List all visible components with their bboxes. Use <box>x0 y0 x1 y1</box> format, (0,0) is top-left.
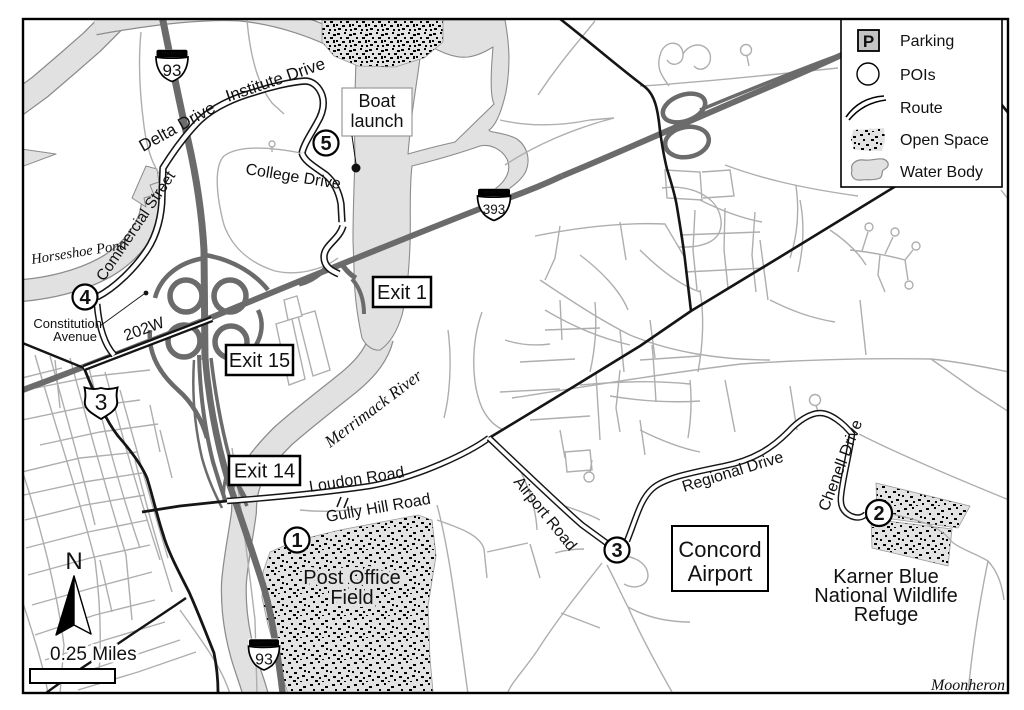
svg-text:Concord: Concord <box>678 537 761 562</box>
svg-text:93: 93 <box>255 652 273 669</box>
svg-text:Exit 15: Exit 15 <box>229 350 290 372</box>
svg-text:Parking: Parking <box>900 33 954 50</box>
svg-text:0.25 Miles: 0.25 Miles <box>50 644 137 665</box>
svg-text:2: 2 <box>873 503 884 525</box>
svg-text:launch: launch <box>350 111 403 131</box>
svg-text:Boat: Boat <box>358 91 395 111</box>
svg-text:Moonheron: Moonheron <box>930 677 1005 694</box>
svg-text:3: 3 <box>611 540 622 562</box>
svg-text:Exit 1: Exit 1 <box>377 282 427 304</box>
svg-text:Water Body: Water Body <box>900 164 983 181</box>
svg-text:Avenue: Avenue <box>53 329 97 344</box>
svg-text:POIs: POIs <box>900 67 936 84</box>
svg-text:Post Office: Post Office <box>303 567 400 589</box>
svg-text:P: P <box>863 32 874 51</box>
svg-text:1: 1 <box>291 530 302 552</box>
svg-text:Route: Route <box>900 100 943 117</box>
svg-text:INTERSTATE: INTERSTATE <box>253 641 275 645</box>
svg-text:Exit 14: Exit 14 <box>234 461 295 483</box>
svg-text:393: 393 <box>483 202 506 217</box>
svg-text:3: 3 <box>95 389 108 415</box>
svg-text:93: 93 <box>163 61 182 80</box>
svg-text:N: N <box>65 548 82 575</box>
svg-text:INTERSTATE: INTERSTATE <box>483 191 505 195</box>
svg-text:Airport: Airport <box>688 561 753 586</box>
svg-text:4: 4 <box>79 287 91 309</box>
svg-text:INTERSTATE: INTERSTATE <box>161 51 183 55</box>
svg-text:Field: Field <box>330 587 373 609</box>
svg-text:Open Space: Open Space <box>900 132 989 149</box>
svg-text:Refuge: Refuge <box>854 604 919 626</box>
svg-text:5: 5 <box>320 133 331 155</box>
